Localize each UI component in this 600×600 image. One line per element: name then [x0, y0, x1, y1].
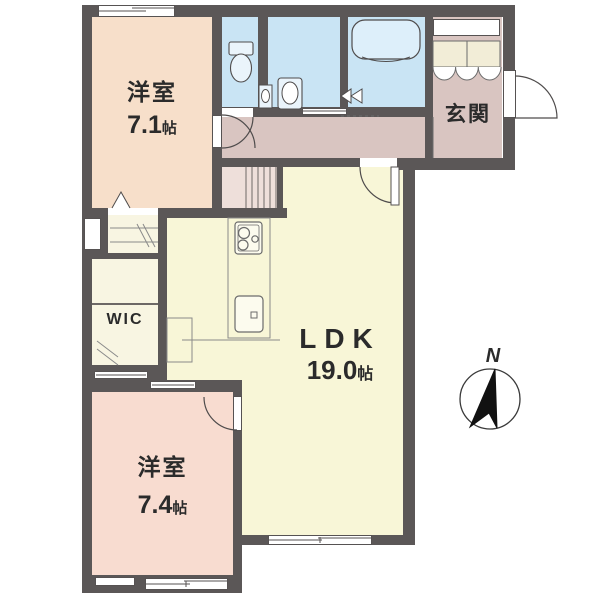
door-opening-bedroom-bottom: [233, 396, 242, 431]
door-sliding-wic-rail-a: [94, 371, 148, 379]
wall-cell-right: [277, 167, 283, 208]
toilet-room-floor: [222, 17, 258, 107]
door-sliding-washroom: [302, 108, 347, 115]
ldk-floor-upper: [283, 167, 403, 218]
label-compass-north: N: [480, 346, 506, 367]
wall-outer-left: [82, 5, 92, 593]
window-entrance-top: [433, 19, 500, 36]
hallway-floor: [222, 115, 433, 158]
label-bedroom-bottom-area: 7.4帖: [92, 492, 233, 518]
window-bedroom-bottom-small: [95, 577, 135, 586]
door-opening-ldk: [360, 158, 397, 167]
window-closet-left: [84, 218, 101, 250]
compass-icon: [460, 369, 520, 429]
washroom-floor: [268, 17, 340, 107]
wall-bath-entrance-divider: [425, 5, 433, 160]
door-arc-entrance: [515, 76, 557, 118]
wall-ldk-right: [403, 158, 415, 545]
door-opening-toilet: [222, 107, 253, 117]
label-ldk-name: LDK: [285, 324, 395, 353]
entrance-floor: [433, 17, 502, 158]
window-ldk-balcony-sliding: [268, 535, 372, 545]
closet-floor: [108, 215, 158, 253]
bathroom-floor: [348, 17, 425, 107]
door-sliding-wic-rail-b: [150, 381, 196, 389]
label-ldk-area: 19.0帖: [285, 357, 395, 384]
wall-closet-wic-divider: [108, 253, 167, 259]
label-entrance: 玄関: [433, 104, 503, 126]
entrance-door-leaf: [503, 70, 516, 118]
window-bedroom-bottom-sliding: [145, 578, 228, 590]
label-wic: WIC: [92, 312, 158, 329]
label-bedroom-top-name: 洋室: [92, 80, 212, 104]
ldk-floor-lower: [242, 392, 403, 535]
wall-kitchen-top: [158, 208, 287, 218]
wall-hall-bottom: [212, 158, 360, 167]
label-bedroom-top-area: 7.1帖: [92, 112, 212, 138]
door-opening-bedroom-top: [212, 115, 222, 148]
wall-washroom-right: [340, 17, 348, 117]
window-bedroom-top: [98, 5, 175, 17]
room-bedroom-bottom-floor: [92, 392, 233, 578]
duct-stair-cell: [222, 167, 277, 208]
label-bedroom-bottom-name: 洋室: [92, 455, 233, 479]
wall-toilet-right: [258, 17, 268, 117]
floor-plan: 洋室 7.1帖 LDK 19.0帖 玄関 WIC 洋室 7.4帖 N: [0, 0, 600, 600]
wall-bedroom-top-right: [212, 5, 222, 218]
